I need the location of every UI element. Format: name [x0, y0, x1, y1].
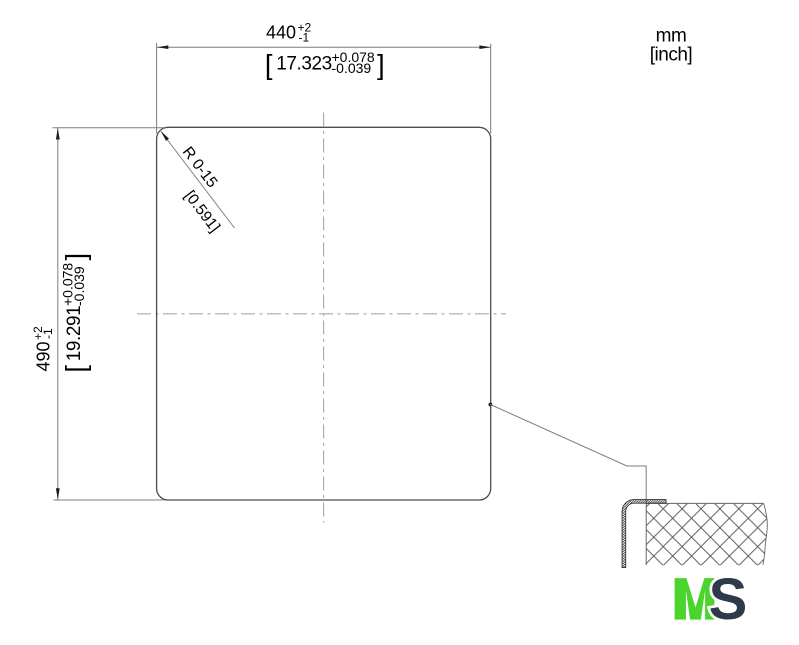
svg-text:17.323: 17.323	[276, 53, 331, 74]
svg-text:-1: -1	[41, 328, 55, 339]
svg-text:S: S	[709, 567, 748, 632]
svg-text:[: [	[265, 49, 273, 80]
svg-text:]: ]	[60, 253, 91, 261]
svg-text:-1: -1	[299, 31, 310, 45]
svg-text:-0.039: -0.039	[332, 60, 372, 76]
svg-text:[inch]: [inch]	[650, 44, 692, 65]
svg-text:[: [	[60, 365, 91, 373]
svg-text:440: 440	[266, 23, 296, 43]
svg-text:]: ]	[377, 49, 385, 80]
svg-text:-0.039: -0.039	[71, 266, 87, 306]
svg-text:19.291: 19.291	[64, 306, 85, 361]
svg-text:490: 490	[33, 341, 53, 371]
